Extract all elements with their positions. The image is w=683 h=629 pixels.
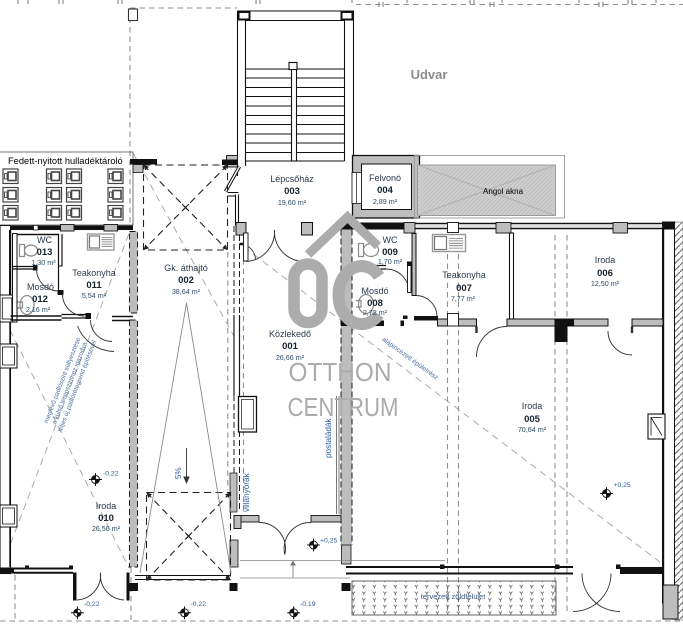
svg-text:Gk. áthajtó: Gk. áthajtó	[164, 263, 208, 273]
svg-text:2,72 m²: 2,72 m²	[363, 308, 388, 317]
svg-text:002: 002	[178, 275, 194, 286]
svg-text:010: 010	[98, 513, 114, 524]
svg-text:001: 001	[282, 341, 299, 352]
svg-text:villanyórák: villanyórák	[242, 472, 251, 512]
svg-text:Iroda: Iroda	[595, 255, 616, 265]
svg-text:Iroda: Iroda	[522, 401, 543, 411]
svg-text:Felvonó: Felvonó	[369, 173, 401, 183]
svg-text:004: 004	[377, 185, 394, 196]
svg-text:007: 007	[456, 283, 472, 294]
svg-text:5,54 m²: 5,54 m²	[82, 291, 107, 300]
svg-text:012: 012	[32, 294, 48, 305]
svg-text:2,16 m²: 2,16 m²	[26, 305, 51, 314]
svg-text:Udvar: Udvar	[411, 67, 448, 82]
svg-text:Lépcsőház: Lépcsőház	[270, 174, 314, 184]
svg-text:1,70 m²: 1,70 m²	[378, 257, 403, 266]
svg-text:Angol akna: Angol akna	[483, 187, 524, 196]
svg-text:5%: 5%	[174, 467, 183, 479]
svg-text:1,30 m²: 1,30 m²	[31, 258, 56, 267]
svg-text:003: 003	[284, 186, 300, 197]
svg-text:Fedett-nyitott hulladéktároló: Fedett-nyitott hulladéktároló	[8, 156, 123, 166]
svg-text:12,50 m²: 12,50 m²	[591, 279, 620, 288]
svg-text:70,64 m²: 70,64 m²	[518, 425, 547, 434]
svg-text:postaládák: postaládák	[324, 417, 333, 458]
svg-text:19,60 m²: 19,60 m²	[278, 198, 307, 207]
svg-text:7,77 m²: 7,77 m²	[451, 294, 476, 303]
svg-text:Közlekedő: Közlekedő	[269, 329, 311, 339]
svg-text:Mosdó: Mosdó	[27, 282, 54, 292]
svg-text:CENTRUM: CENTRUM	[288, 392, 399, 422]
svg-text:Iroda: Iroda	[96, 501, 117, 511]
svg-text:011: 011	[86, 280, 102, 291]
svg-text:26,56 m²: 26,56 m²	[92, 524, 121, 533]
svg-text:-0,22: -0,22	[191, 601, 207, 608]
svg-text:+0,25: +0,25	[320, 538, 337, 545]
svg-text:-0,22: -0,22	[84, 601, 100, 608]
svg-text:Teakonyha: Teakonyha	[72, 268, 116, 278]
svg-text:WC: WC	[383, 235, 398, 245]
svg-text:38,64 m²: 38,64 m²	[172, 287, 201, 296]
svg-text:-0,22: -0,22	[103, 471, 119, 478]
svg-text:Teakonyha: Teakonyha	[442, 270, 486, 280]
svg-text:Mosdó: Mosdó	[361, 286, 388, 296]
svg-text:006: 006	[597, 268, 613, 279]
svg-text:tervezett zöldfelület: tervezett zöldfelület	[421, 592, 487, 601]
svg-text:005: 005	[524, 414, 541, 425]
svg-text:26,66 m²: 26,66 m²	[276, 353, 305, 362]
svg-text:-0,19: -0,19	[300, 601, 316, 608]
svg-text:+0,25: +0,25	[614, 482, 631, 489]
svg-text:2,89 m²: 2,89 m²	[373, 197, 398, 206]
svg-text:013: 013	[37, 247, 53, 258]
svg-text:WC: WC	[37, 235, 52, 245]
